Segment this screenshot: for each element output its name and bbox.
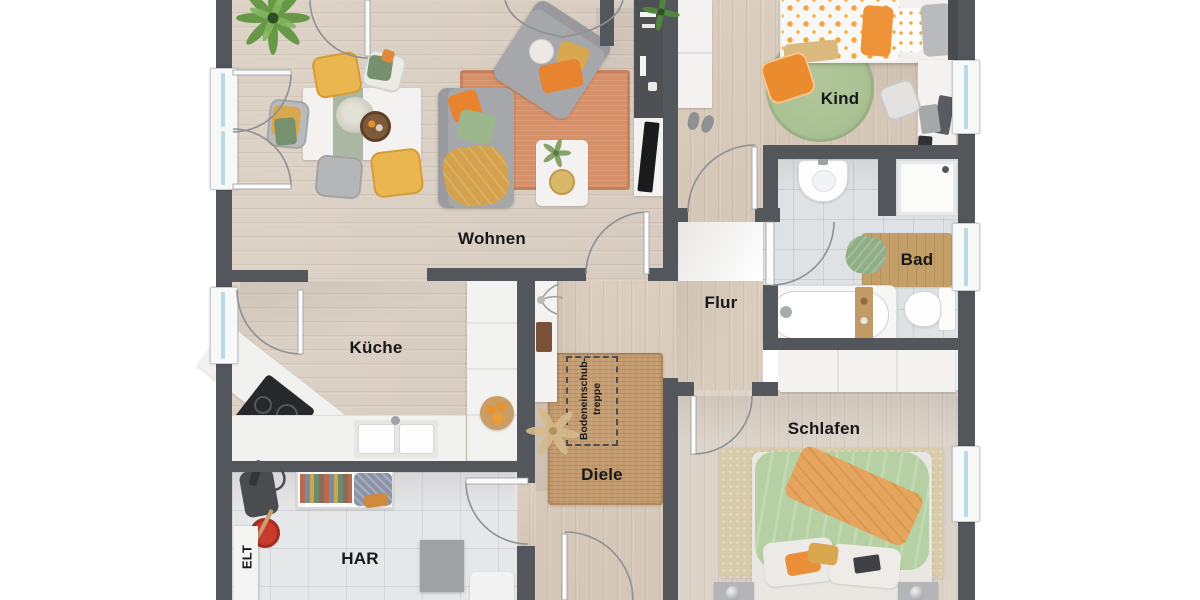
floor-plan: Wohnen Küche HAR ELT Diele Flur Kind Bad… bbox=[0, 0, 1200, 600]
window-glass bbox=[964, 228, 968, 286]
room-label-har: HAR bbox=[341, 549, 378, 569]
table-lamp bbox=[910, 586, 924, 600]
wall-flur-bad-lower bbox=[763, 285, 778, 338]
sink-bowl bbox=[812, 170, 836, 192]
room-label-wohnen: Wohnen bbox=[458, 229, 526, 249]
room-label-elt: ELT bbox=[240, 545, 255, 569]
wall-har-diele bbox=[517, 546, 535, 600]
hall-wardrobe bbox=[678, 0, 712, 108]
room-label-kueche: Küche bbox=[350, 338, 403, 358]
bath-caddy bbox=[855, 287, 873, 343]
shelf-decor bbox=[648, 82, 657, 91]
table-lamp bbox=[726, 586, 740, 600]
window-kind bbox=[952, 60, 980, 134]
fruit-bowl bbox=[480, 396, 514, 430]
window-glass bbox=[221, 131, 225, 185]
pillow-dotted bbox=[896, 8, 922, 52]
room-label-diele: Diele bbox=[581, 465, 623, 485]
gold-tray bbox=[549, 169, 575, 195]
napkin-green bbox=[274, 117, 297, 146]
wall-bad-schlafen bbox=[763, 338, 975, 350]
wall-kind-bad bbox=[763, 145, 958, 159]
wall-flur-bad-upper bbox=[763, 145, 778, 222]
wall-kueche-har bbox=[216, 461, 517, 472]
faucet bbox=[391, 416, 400, 425]
books-stack bbox=[536, 322, 552, 352]
storage-cabinet bbox=[420, 540, 464, 592]
dining-chair-yellow bbox=[369, 147, 424, 199]
sink-basin bbox=[399, 424, 434, 454]
pillow-orange bbox=[860, 5, 893, 57]
window-bad bbox=[952, 223, 980, 291]
shelf-decor bbox=[640, 12, 656, 17]
wall-corner bbox=[648, 268, 663, 281]
bed-headboard bbox=[948, 0, 958, 62]
media-shelf bbox=[634, 0, 663, 118]
room-label-kind: Kind bbox=[821, 89, 860, 109]
toilet bbox=[904, 291, 941, 327]
attic-stairs-label-line1: Bodeneinschub- bbox=[578, 358, 591, 440]
wall-stub-top bbox=[600, 0, 614, 46]
window-wohnen bbox=[210, 68, 238, 190]
sink-basin bbox=[358, 424, 395, 454]
window-glass bbox=[221, 292, 225, 359]
wall-kueche-diele bbox=[517, 281, 535, 483]
wall-schlafen-top-right bbox=[752, 382, 778, 396]
kitchen-tall-cabinet bbox=[467, 278, 517, 462]
window-glass bbox=[964, 451, 968, 517]
folded-clothes bbox=[300, 474, 352, 503]
room-label-bad: Bad bbox=[901, 250, 934, 270]
window-kueche bbox=[210, 287, 238, 364]
shelf-decor bbox=[642, 24, 655, 28]
tub-faucet bbox=[780, 306, 792, 318]
window-glass bbox=[221, 73, 225, 127]
wall-kueche-top-right bbox=[427, 268, 586, 281]
room-label-flur: Flur bbox=[705, 293, 738, 313]
dresser bbox=[780, 348, 956, 392]
window-glass bbox=[964, 65, 968, 129]
side-table bbox=[529, 39, 554, 64]
window-schlafen bbox=[952, 446, 980, 522]
pillow-mustard bbox=[807, 542, 839, 566]
wall-flur-north-left bbox=[663, 208, 688, 222]
dining-chair-gray bbox=[314, 154, 363, 200]
attic-stairs-label-line2: treppe bbox=[591, 358, 604, 440]
room-label-schlafen: Schlafen bbox=[788, 419, 860, 439]
dining-chair-yellow bbox=[311, 50, 364, 99]
wall-kueche-top-left bbox=[216, 270, 308, 282]
wall-bad-partition bbox=[878, 159, 896, 216]
wall-wohnen-flur bbox=[663, 0, 678, 281]
snack-bowl bbox=[360, 111, 391, 142]
wall-schlafen-top-left bbox=[663, 382, 694, 396]
attic-stairs-label: Bodeneinschub- treppe bbox=[578, 358, 604, 440]
laptop bbox=[918, 104, 941, 134]
floor-threshold-har bbox=[517, 483, 535, 546]
shelf-decor bbox=[640, 56, 646, 76]
wall-diele-schlafen bbox=[663, 378, 678, 600]
water-heater bbox=[470, 572, 514, 600]
shower-drain bbox=[942, 166, 949, 173]
